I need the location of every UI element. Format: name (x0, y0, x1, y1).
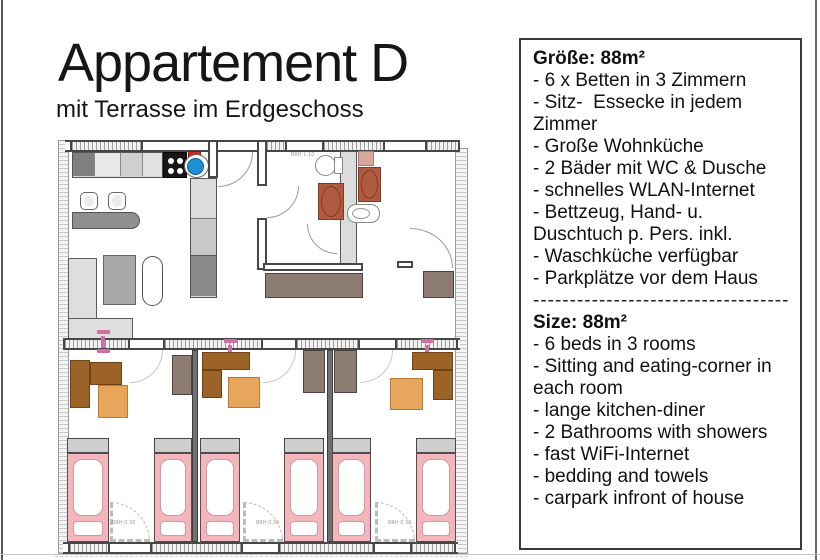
shower-icon (318, 183, 344, 220)
wall-bedrooms (63, 338, 460, 350)
info-item: - 6 beds in 3 rooms (533, 334, 788, 356)
kitchen-worktop (120, 153, 142, 176)
shower-icon (358, 167, 381, 202)
desk (412, 352, 453, 370)
window-height-label: BRH 1.10 (291, 153, 314, 158)
bed (154, 453, 192, 542)
toilet-seat (352, 208, 370, 219)
window (278, 544, 375, 552)
door-height-label: BRH 0.30 (112, 521, 135, 526)
info-item: - Waschküche verfügbar (533, 246, 788, 268)
info-panel: Größe: 88m² - 6 x Betten in 3 Zimmern- S… (519, 38, 802, 550)
sofa (68, 258, 97, 320)
window (425, 142, 460, 150)
kitchen-counter (72, 152, 163, 178)
bed (416, 453, 456, 542)
info-item: - 2 Bathrooms with showers (533, 422, 788, 444)
wall-bottom (63, 542, 458, 554)
kitchen-tall-units (190, 178, 217, 298)
pillow (416, 438, 456, 453)
toilet-tank (334, 157, 343, 174)
info-divider: ----------------------------------------… (533, 290, 788, 312)
kitchen-worktop (94, 153, 120, 176)
info-item: - Bettzeug, Hand- u. Duschtuch p. Pers. … (533, 202, 788, 246)
info-item: - fast WiFi-Internet (533, 444, 788, 466)
door-arc-bathroom (267, 186, 299, 218)
page-subtitle: mit Terrasse im Erdgeschoss (56, 96, 364, 124)
wardrobe (303, 350, 325, 393)
door-arc-bedroom3 (360, 350, 393, 383)
wall-lamp-icon (96, 330, 110, 353)
info-item: - lange kitchen-diner (533, 400, 788, 422)
door-arc-entrance (218, 152, 253, 187)
info-heading-en: Size: 88m² (533, 312, 788, 334)
info-item: - bedding and towels (533, 466, 788, 488)
table (98, 385, 128, 418)
desk (433, 370, 453, 400)
info-item: - Parkplätze vor dem Haus (533, 268, 788, 290)
sideboard (265, 273, 363, 298)
wardrobe (334, 350, 357, 393)
sink-icon (187, 158, 204, 175)
window (70, 142, 143, 150)
pillow (332, 438, 371, 453)
toilet-icon (347, 204, 380, 223)
window (163, 340, 263, 348)
kitchen-unit (191, 218, 216, 255)
desk (202, 370, 222, 398)
wall-bathroom (257, 140, 267, 186)
info-item: - 2 Bäder mit WC & Dusche (533, 158, 788, 180)
bed (332, 453, 371, 542)
table (390, 378, 423, 410)
door-arc-bedroom1 (130, 350, 163, 383)
chair-icon (80, 192, 98, 210)
pillow (154, 438, 192, 453)
info-item: - Große Wohnküche (533, 136, 788, 158)
window (68, 544, 110, 552)
pillow (67, 438, 109, 453)
toilet-icon (315, 155, 336, 176)
bath-mat (358, 151, 374, 166)
info-list-en: - 6 beds in 3 rooms- Sitting and eating-… (533, 334, 788, 510)
flyer-root: Appartement D mit Terrasse im Erdgeschos… (0, 0, 820, 560)
kitchen-cabinet (73, 153, 94, 176)
desk (202, 352, 250, 370)
pillow (284, 438, 324, 453)
wardrobe (172, 355, 192, 395)
wall-exterior-right (455, 148, 468, 554)
door-height-label: BRH 0.30 (388, 521, 411, 526)
chair-icon (108, 192, 126, 210)
desk (90, 362, 122, 385)
window (410, 544, 456, 552)
fridge (191, 255, 216, 296)
rug (142, 256, 163, 306)
door-arc-room3 (410, 228, 453, 268)
window (295, 340, 360, 348)
table (228, 377, 260, 408)
frame-left (1, 0, 3, 560)
terrace-edge (55, 556, 468, 557)
info-item: - 6 x Betten in 3 Zimmern (533, 70, 788, 92)
window (150, 544, 243, 552)
frame-right (815, 0, 817, 560)
window (322, 142, 385, 150)
pillow (200, 438, 240, 453)
info-item: - schnelles WLAN-Internet (533, 180, 788, 202)
door-height-label: BRH 0.30 (256, 521, 279, 526)
wall-entry (208, 140, 218, 178)
door-arc-bedroom2 (263, 350, 296, 383)
floorplan: BRH 1.10 (55, 140, 470, 560)
bed (67, 453, 109, 542)
info-heading-de: Größe: 88m² (533, 48, 788, 70)
hall-wardrobe (423, 271, 454, 298)
desk (70, 360, 90, 408)
kitchen-worktop (142, 153, 161, 176)
bed (200, 453, 240, 542)
coffee-table (103, 255, 136, 305)
dining-bar (72, 212, 140, 229)
wall-room-divider (192, 350, 198, 542)
door-arc-bathroom (307, 224, 337, 254)
info-list-de: - 6 x Betten in 3 Zimmern- Sitz- Essecke… (533, 70, 788, 290)
wall-corridor (263, 263, 363, 271)
bed (284, 453, 324, 542)
info-item: - Sitting and eating-corner in each room (533, 356, 788, 400)
page-title: Appartement D (58, 32, 408, 94)
info-item: - carpark infront of house (533, 488, 788, 510)
info-item: - Sitz- Essecke in jedem Zimmer (533, 92, 788, 136)
